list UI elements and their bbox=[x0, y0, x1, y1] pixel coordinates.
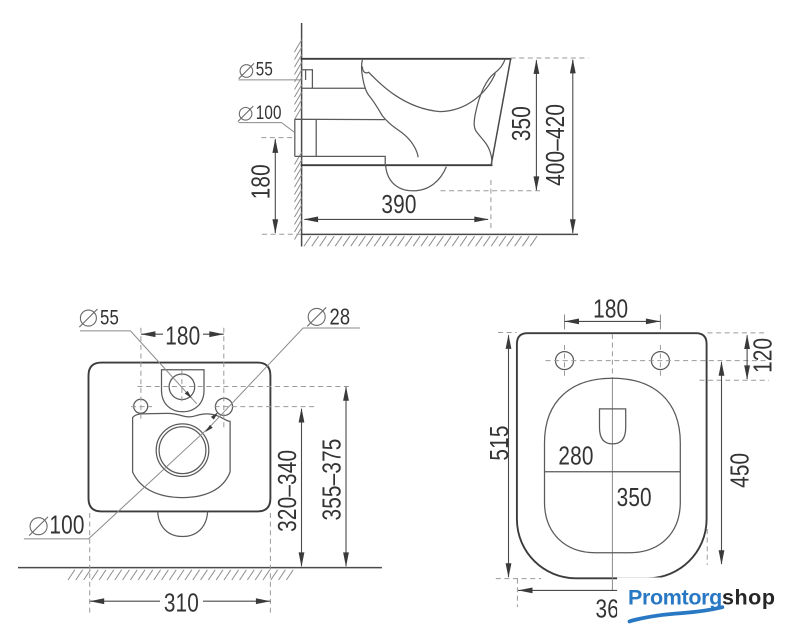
svg-text:310: 310 bbox=[164, 588, 199, 617]
svg-text:450: 450 bbox=[726, 453, 755, 488]
svg-text:180: 180 bbox=[165, 321, 200, 350]
svg-text:355–375: 355–375 bbox=[318, 438, 347, 520]
svg-text:390: 390 bbox=[381, 190, 416, 219]
svg-text:Promtorgshop: Promtorgshop bbox=[628, 586, 776, 610]
svg-text:320–340: 320–340 bbox=[273, 450, 302, 532]
svg-text:350: 350 bbox=[617, 483, 652, 512]
svg-text:28: 28 bbox=[330, 305, 351, 330]
svg-text:100: 100 bbox=[256, 101, 282, 123]
svg-text:515: 515 bbox=[485, 425, 514, 460]
svg-text:55: 55 bbox=[100, 307, 119, 330]
svg-text:350: 350 bbox=[507, 106, 536, 141]
svg-text:400–420: 400–420 bbox=[541, 104, 570, 186]
svg-text:180: 180 bbox=[593, 294, 628, 323]
svg-text:180: 180 bbox=[246, 164, 275, 199]
svg-text:280: 280 bbox=[558, 442, 593, 471]
svg-text:120: 120 bbox=[748, 338, 777, 373]
svg-text:100: 100 bbox=[49, 510, 84, 539]
svg-text:55: 55 bbox=[256, 58, 273, 80]
